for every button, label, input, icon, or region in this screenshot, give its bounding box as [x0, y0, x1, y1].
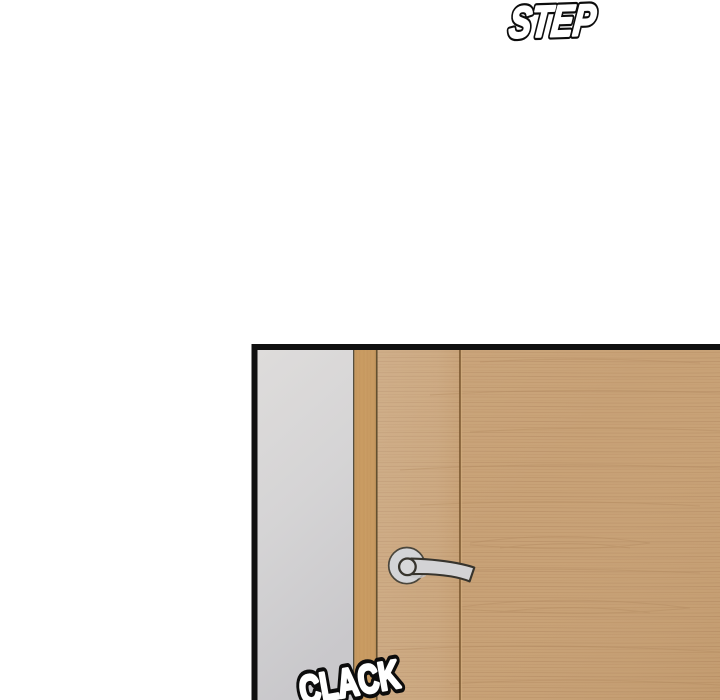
- svg-text:STEP: STEP: [507, 0, 598, 48]
